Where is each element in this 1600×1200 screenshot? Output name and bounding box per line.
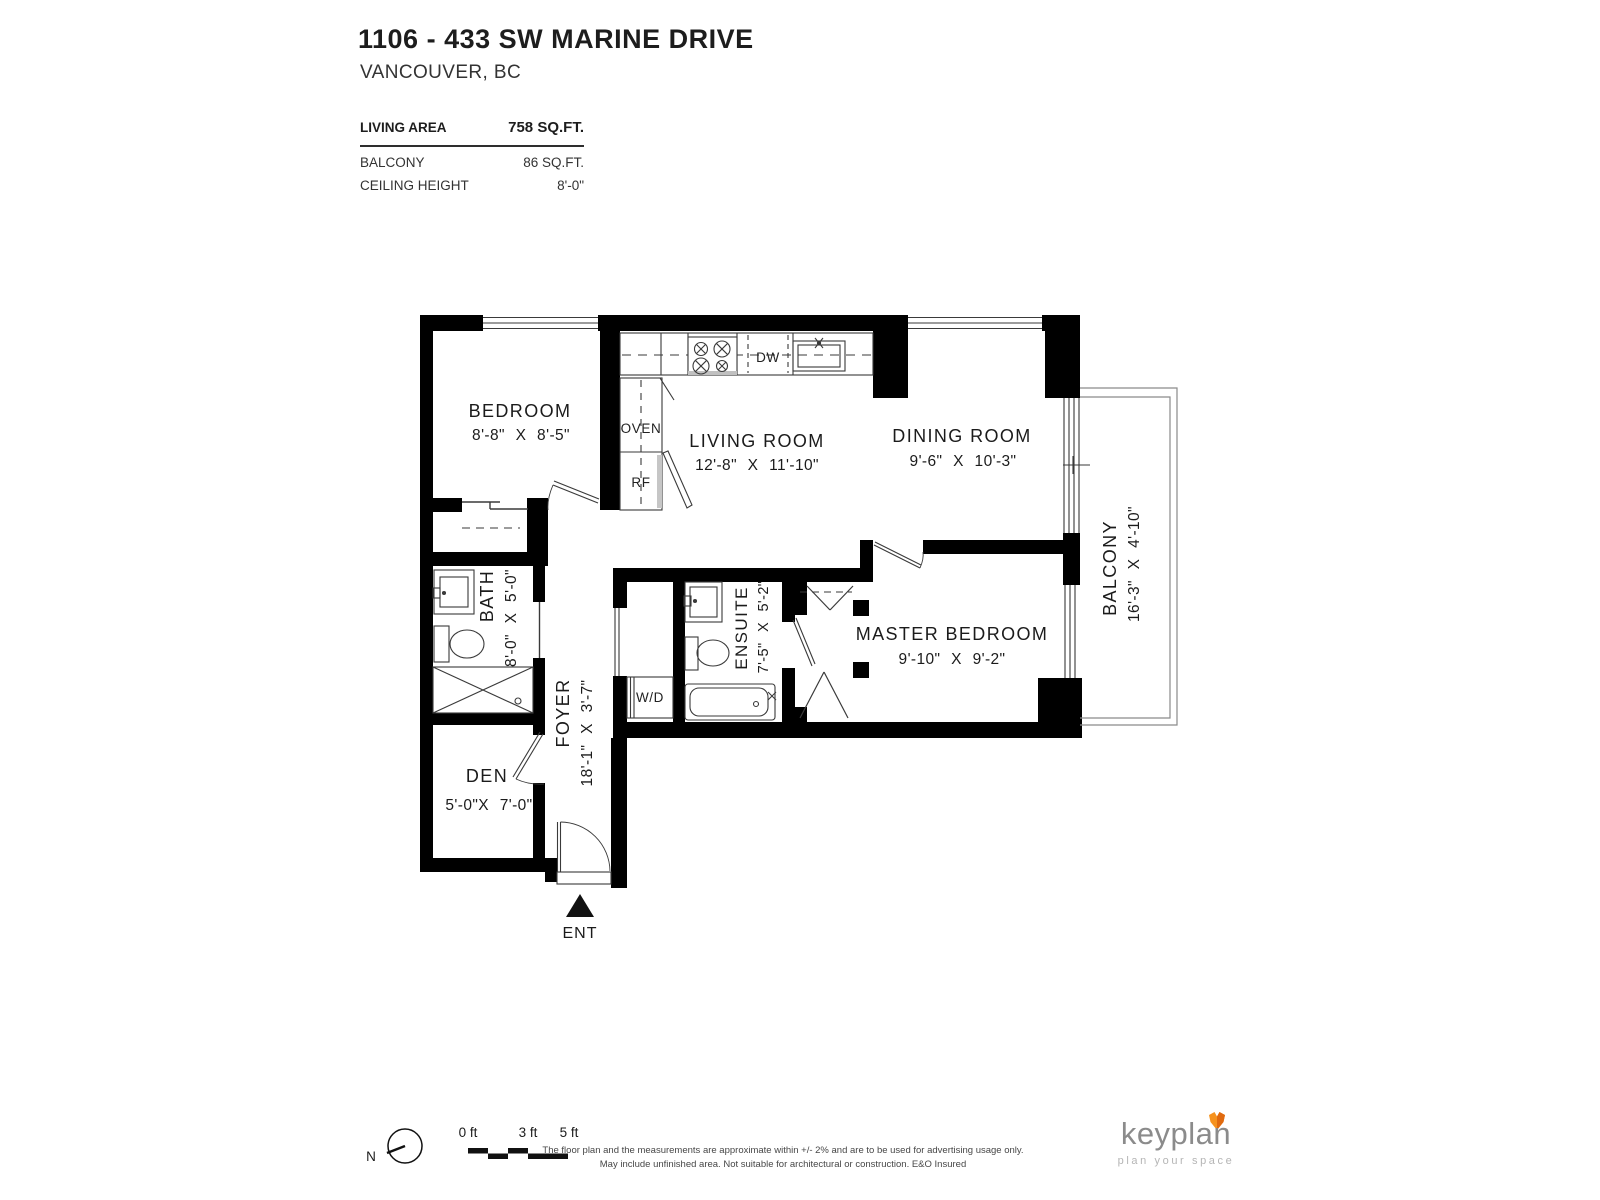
dishwasher-label: DW (756, 350, 780, 365)
bedroom-door (548, 481, 599, 510)
north-label: N (366, 1149, 376, 1164)
washer-dryer-label: W/D (636, 690, 664, 705)
ensuite-bathtub (685, 684, 776, 720)
entry-door (557, 822, 611, 884)
living-area-label: LIVING AREA (360, 120, 447, 135)
master-closets (800, 586, 853, 718)
scale-0ft: 0 ft (459, 1125, 478, 1140)
ensuite-dims: 7'-5" X 5'-2" (756, 581, 772, 674)
balcony-sliding-door (1063, 398, 1090, 533)
ceiling-height-label: CEILING HEIGHT (360, 178, 469, 193)
balcony-label: BALCONY (1100, 520, 1120, 616)
north-compass: N (366, 1129, 422, 1164)
den-label: DEN (466, 766, 508, 786)
entrance-marker: ENT (563, 894, 598, 942)
master-bedroom-label: MASTER BEDROOM (856, 624, 1049, 644)
bedroom-label: BEDROOM (469, 401, 572, 421)
master-door (874, 542, 923, 568)
stove (688, 337, 737, 375)
kitchen-door (663, 451, 692, 508)
bath-label: BATH (477, 570, 497, 622)
living-area-row: LIVING AREA 758 SQ.FT. (360, 119, 584, 147)
disclaimer: The floor plan and the measurements are … (533, 1144, 1033, 1172)
living-room-dims: 12'-8" X 11'-10" (695, 457, 819, 474)
den-door (513, 732, 544, 784)
page-subtitle: VANCOUVER, BC (360, 62, 521, 84)
ceiling-row: CEILING HEIGHT 8'-0" (360, 178, 584, 193)
bedroom-closet (462, 502, 528, 528)
foyer-label: FOYER (553, 678, 573, 747)
bath-toilet (434, 626, 484, 662)
dining-window (908, 318, 1042, 329)
foyer-dims: 18'-1" X 3'-7" (579, 680, 596, 787)
ceiling-height-value: 8'-0" (557, 178, 584, 193)
den-dims: 5'-0"X 7'-0" (445, 797, 532, 814)
oven-label: OVEN (621, 421, 662, 436)
oven-fridge-column (620, 378, 674, 510)
entrance-label: ENT (563, 925, 598, 942)
bedroom-window (483, 318, 598, 329)
brand-name: keyplan (1116, 1118, 1236, 1151)
bath-sink (433, 570, 474, 614)
balcony-row: BALCONY 86 SQ.FT. (360, 155, 584, 170)
master-window (1065, 585, 1075, 678)
living-room-label: LIVING ROOM (689, 431, 824, 451)
floorplan-page: BEDROOM 8'-8" X 8'-5" LIVING ROOM 12'-8"… (0, 0, 1600, 1200)
master-bedroom-dims: 9'-10" X 9'-2" (899, 651, 1006, 668)
ensuite-label: ENSUITE (732, 586, 751, 669)
bedroom-dims: 8'-8" X 8'-5" (472, 427, 570, 444)
page-title: 1106 - 433 SW MARINE DRIVE (358, 24, 754, 55)
floor-plan-drawing: BEDROOM 8'-8" X 8'-5" LIVING ROOM 12'-8"… (0, 0, 1600, 1200)
kitchen-counter (620, 333, 873, 375)
dining-room-dims: 9'-6" X 10'-3" (910, 453, 1017, 470)
balcony-area-label: BALCONY (360, 155, 425, 170)
brand-tagline: plan your space (1116, 1155, 1236, 1167)
area-table: LIVING AREA 758 SQ.FT. BALCONY 86 SQ.FT.… (360, 119, 584, 193)
dining-room-label: DINING ROOM (892, 426, 1031, 446)
ensuite-toilet (685, 637, 729, 670)
ensuite-door (793, 618, 815, 666)
scale-5ft: 5 ft (560, 1125, 579, 1140)
living-area-value: 758 SQ.FT. (508, 119, 584, 136)
bath-dims: 8'-0" X 5'-0" (503, 569, 520, 667)
scale-3ft: 3 ft (519, 1125, 538, 1140)
keyplan-logo: keyplan plan your space (1116, 1118, 1236, 1167)
disclaimer-line1: The floor plan and the measurements are … (533, 1144, 1033, 1158)
disclaimer-line2: May include unfinished area. Not suitabl… (533, 1158, 1033, 1172)
ensuite-sink (684, 582, 722, 622)
balcony-area-value: 86 SQ.FT. (523, 155, 584, 170)
balcony-dims: 16'-3" X 4'-10" (1126, 506, 1143, 622)
fridge-label: RF (631, 475, 650, 490)
bath-shower (433, 667, 533, 713)
